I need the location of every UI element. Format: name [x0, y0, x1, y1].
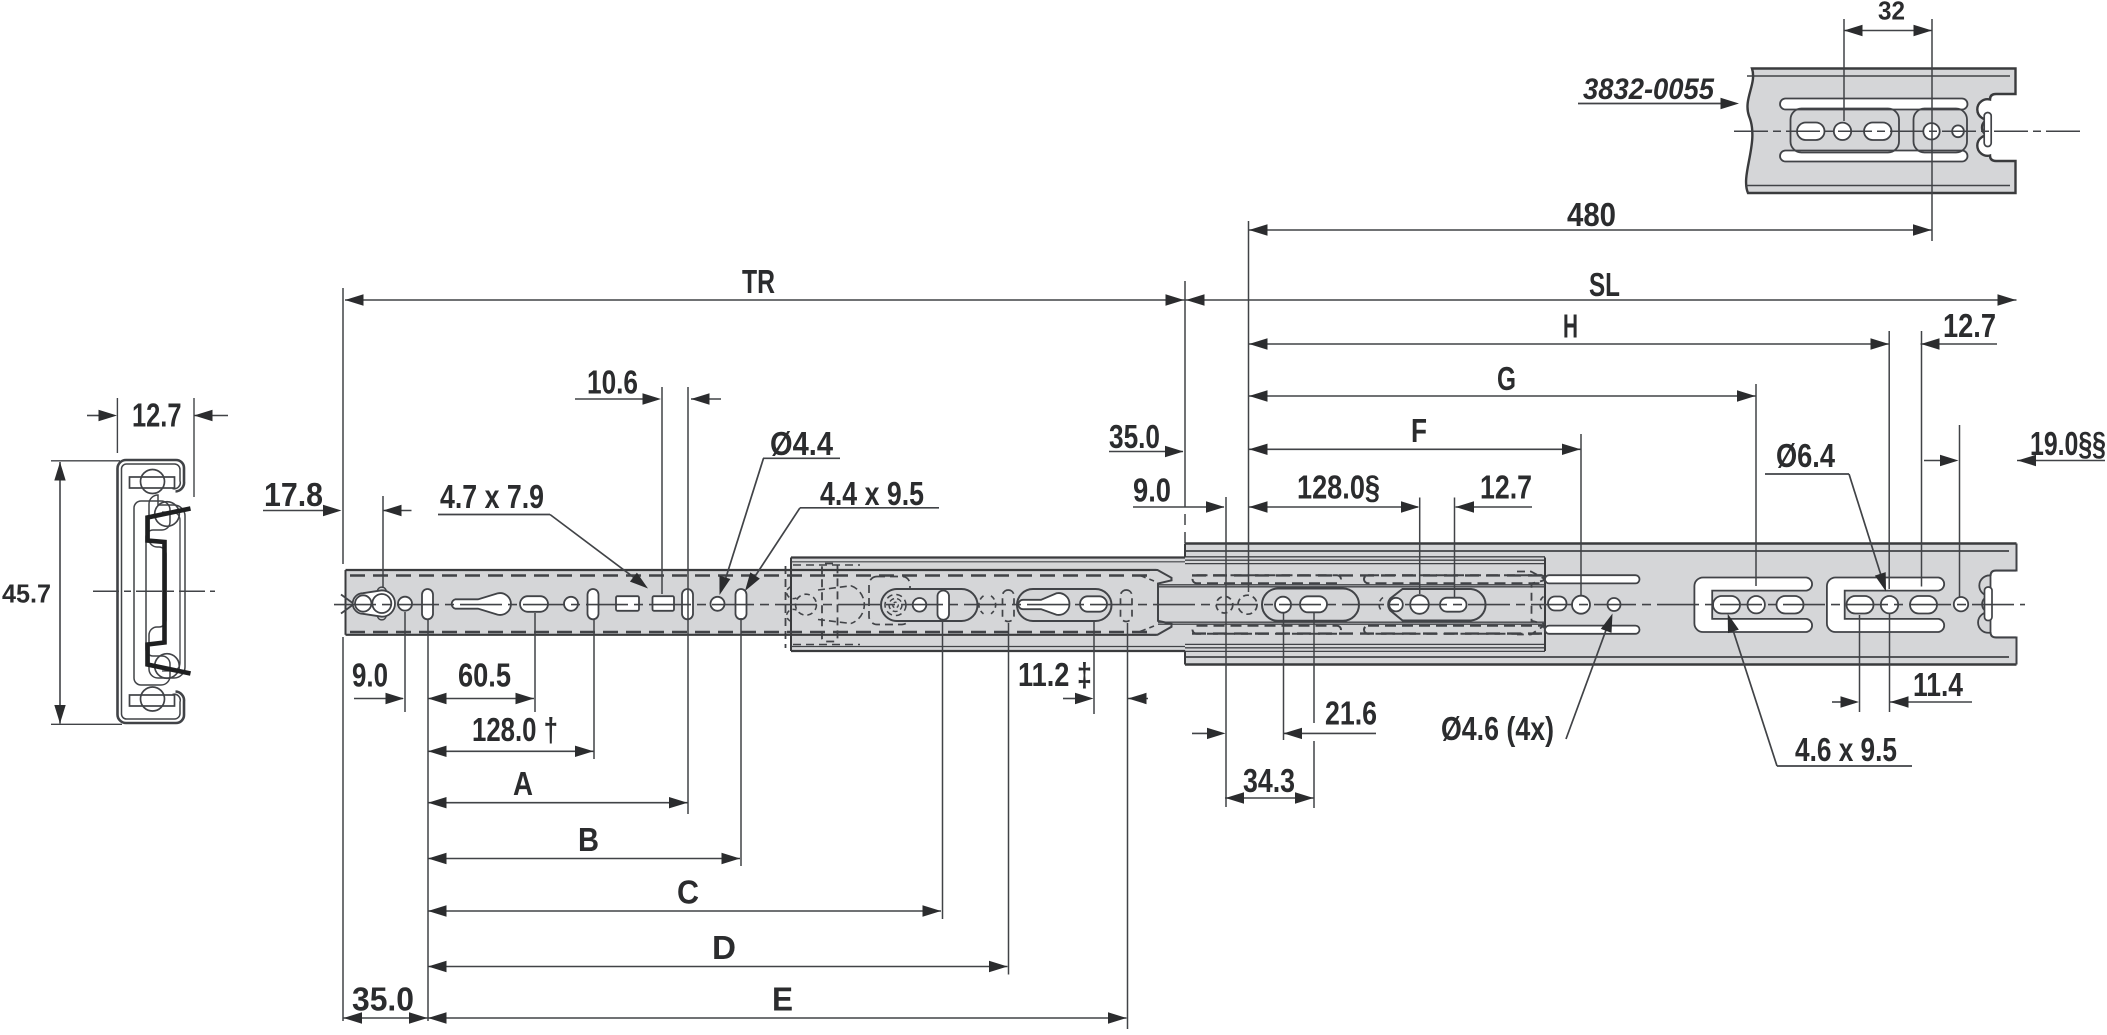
- svg-text:D: D: [712, 929, 736, 966]
- svg-text:SL: SL: [1589, 266, 1620, 303]
- svg-text:17.8: 17.8: [264, 476, 323, 513]
- svg-text:E: E: [772, 981, 793, 1018]
- svg-text:128.0 †: 128.0 †: [472, 711, 558, 748]
- svg-text:Ø4.4: Ø4.4: [770, 425, 834, 462]
- svg-text:12.7: 12.7: [1943, 307, 1996, 344]
- svg-text:45.7: 45.7: [2, 579, 51, 609]
- svg-text:10.6: 10.6: [587, 364, 638, 401]
- svg-text:3832-0055: 3832-0055: [1583, 73, 1715, 106]
- svg-text:9.0: 9.0: [352, 657, 388, 694]
- svg-text:128.0§: 128.0§: [1297, 469, 1380, 506]
- svg-text:C: C: [677, 874, 699, 911]
- svg-text:60.5: 60.5: [458, 657, 511, 694]
- svg-text:34.3: 34.3: [1243, 762, 1295, 799]
- svg-text:TR: TR: [742, 263, 775, 300]
- svg-text:4.6 x 9.5: 4.6 x 9.5: [1795, 731, 1897, 768]
- svg-text:21.6: 21.6: [1325, 695, 1377, 732]
- svg-text:480: 480: [1567, 196, 1616, 233]
- svg-text:11.2 ‡: 11.2 ‡: [1018, 656, 1092, 693]
- svg-text:32: 32: [1878, 0, 1905, 26]
- svg-text:G: G: [1497, 360, 1516, 397]
- svg-text:35.0: 35.0: [1109, 418, 1160, 455]
- svg-text:H: H: [1563, 308, 1578, 345]
- svg-text:4.7 x 7.9: 4.7 x 7.9: [440, 478, 544, 515]
- svg-text:35.0: 35.0: [352, 981, 414, 1018]
- svg-text:12.7: 12.7: [132, 397, 182, 434]
- svg-text:9.0: 9.0: [1133, 472, 1171, 509]
- svg-text:B: B: [578, 821, 599, 858]
- svg-text:4.4 x 9.5: 4.4 x 9.5: [820, 475, 924, 512]
- svg-text:Ø6.4: Ø6.4: [1776, 437, 1836, 474]
- svg-text:Ø4.6 (4x): Ø4.6 (4x): [1441, 710, 1554, 747]
- svg-text:F: F: [1411, 412, 1427, 449]
- svg-text:A: A: [513, 765, 533, 802]
- svg-text:19.0§§: 19.0§§: [2030, 425, 2106, 462]
- svg-text:11.4: 11.4: [1913, 666, 1964, 703]
- svg-text:12.7: 12.7: [1480, 469, 1532, 506]
